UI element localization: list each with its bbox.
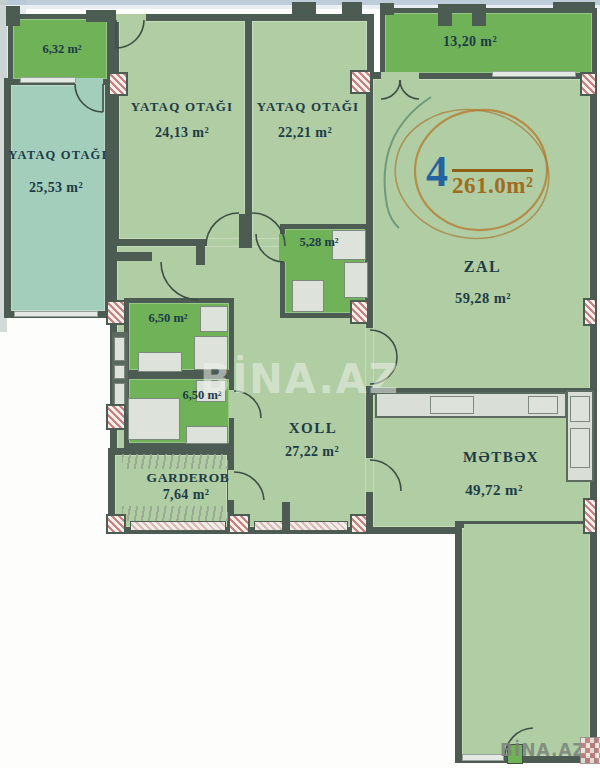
wall-stub <box>239 214 252 248</box>
watermark-center: BİNA.AZ <box>200 356 410 402</box>
opening-balcony-right <box>381 72 419 80</box>
room-kitchen-extension <box>455 521 597 763</box>
label-hall-name: XOLL <box>278 420 348 437</box>
fixture <box>344 262 368 298</box>
window <box>462 754 504 761</box>
window <box>130 521 226 531</box>
window <box>14 311 98 317</box>
label-bedroom-right-name: YATAQ OTAĞI <box>248 100 368 115</box>
label-bathroom-upper-area: 6,50 m² <box>130 311 206 325</box>
pillar <box>583 498 597 534</box>
pillar <box>106 300 126 325</box>
label-balcony-right-area: 13,20 m² <box>410 34 530 50</box>
parapet-block <box>553 2 595 13</box>
parapet-block <box>472 4 486 26</box>
opening-hall-kitchen <box>366 458 373 492</box>
wall-stub <box>282 502 290 532</box>
label-bedroom-right-area: 22,21 m² <box>248 125 362 141</box>
sink <box>528 396 558 414</box>
pillar <box>106 514 126 534</box>
fixture <box>292 280 324 312</box>
label-hall-area: 27,22 m² <box>272 444 352 460</box>
label-living-area: 59,28 m² <box>440 290 526 306</box>
pillar <box>580 72 597 96</box>
wall-stub <box>196 239 205 265</box>
fixture <box>186 426 228 444</box>
pillar <box>350 70 372 94</box>
label-garderob-area: 7,64 m² <box>140 487 232 503</box>
fixture <box>138 352 182 372</box>
wardrobe-hatch-bottom <box>122 506 228 521</box>
wardrobe-hatch-top <box>122 454 228 469</box>
parapet-block <box>380 3 394 15</box>
pillar <box>106 404 126 430</box>
label-garderob-name: GARDEROB <box>138 470 238 485</box>
room-bedroom-left <box>4 78 112 318</box>
stove <box>430 396 474 414</box>
pillar <box>350 514 368 534</box>
pillar <box>583 298 597 326</box>
pillar <box>108 72 128 96</box>
opening-kitchen <box>464 524 588 537</box>
shaft-box <box>114 365 125 379</box>
window <box>254 521 348 531</box>
parapet-block <box>342 2 362 16</box>
parapet-block <box>86 10 116 22</box>
pillar <box>350 300 369 324</box>
window <box>492 71 576 77</box>
wall-stub <box>110 252 152 261</box>
annotation-unit-number: 4 <box>426 146 448 197</box>
bina-logo-icon <box>580 737 600 764</box>
floorplan-photo: 6,32 m² 13,20 m² YATAQ OTAĞI 25,53 m² YA… <box>0 0 600 768</box>
parapet-block <box>438 4 452 26</box>
label-balcony-left-area: 6,32 m² <box>12 42 112 56</box>
label-bedroom-left-area: 25,53 m² <box>6 180 106 196</box>
watermark-corner: BİNA.AZ <box>500 740 586 760</box>
shaft-box <box>114 337 125 361</box>
fixture <box>128 398 180 440</box>
appliance <box>570 428 590 468</box>
pillar <box>228 514 250 534</box>
parapet-block <box>6 6 20 26</box>
label-bedroom-middle-name: YATAQ OTAĞI <box>118 100 246 115</box>
label-kitchen-name: MƏTBƏX <box>440 449 562 466</box>
annotation-total-area: 261.0m² <box>452 169 533 199</box>
label-bathroom-small-area: 5,28 m² <box>284 235 354 249</box>
label-kitchen-area: 49,72 m² <box>438 482 550 499</box>
label-bedroom-middle-area: 24,13 m² <box>122 125 242 141</box>
appliance <box>570 396 590 422</box>
parapet-block <box>292 2 316 16</box>
window <box>20 77 76 83</box>
opening-bedroom-left <box>75 78 103 86</box>
opening-balcony-left <box>116 14 146 22</box>
label-living-name: ZAL <box>445 258 520 276</box>
room-living <box>366 72 597 396</box>
label-bedroom-left-name: YATAQ OTAĞI <box>6 148 110 162</box>
